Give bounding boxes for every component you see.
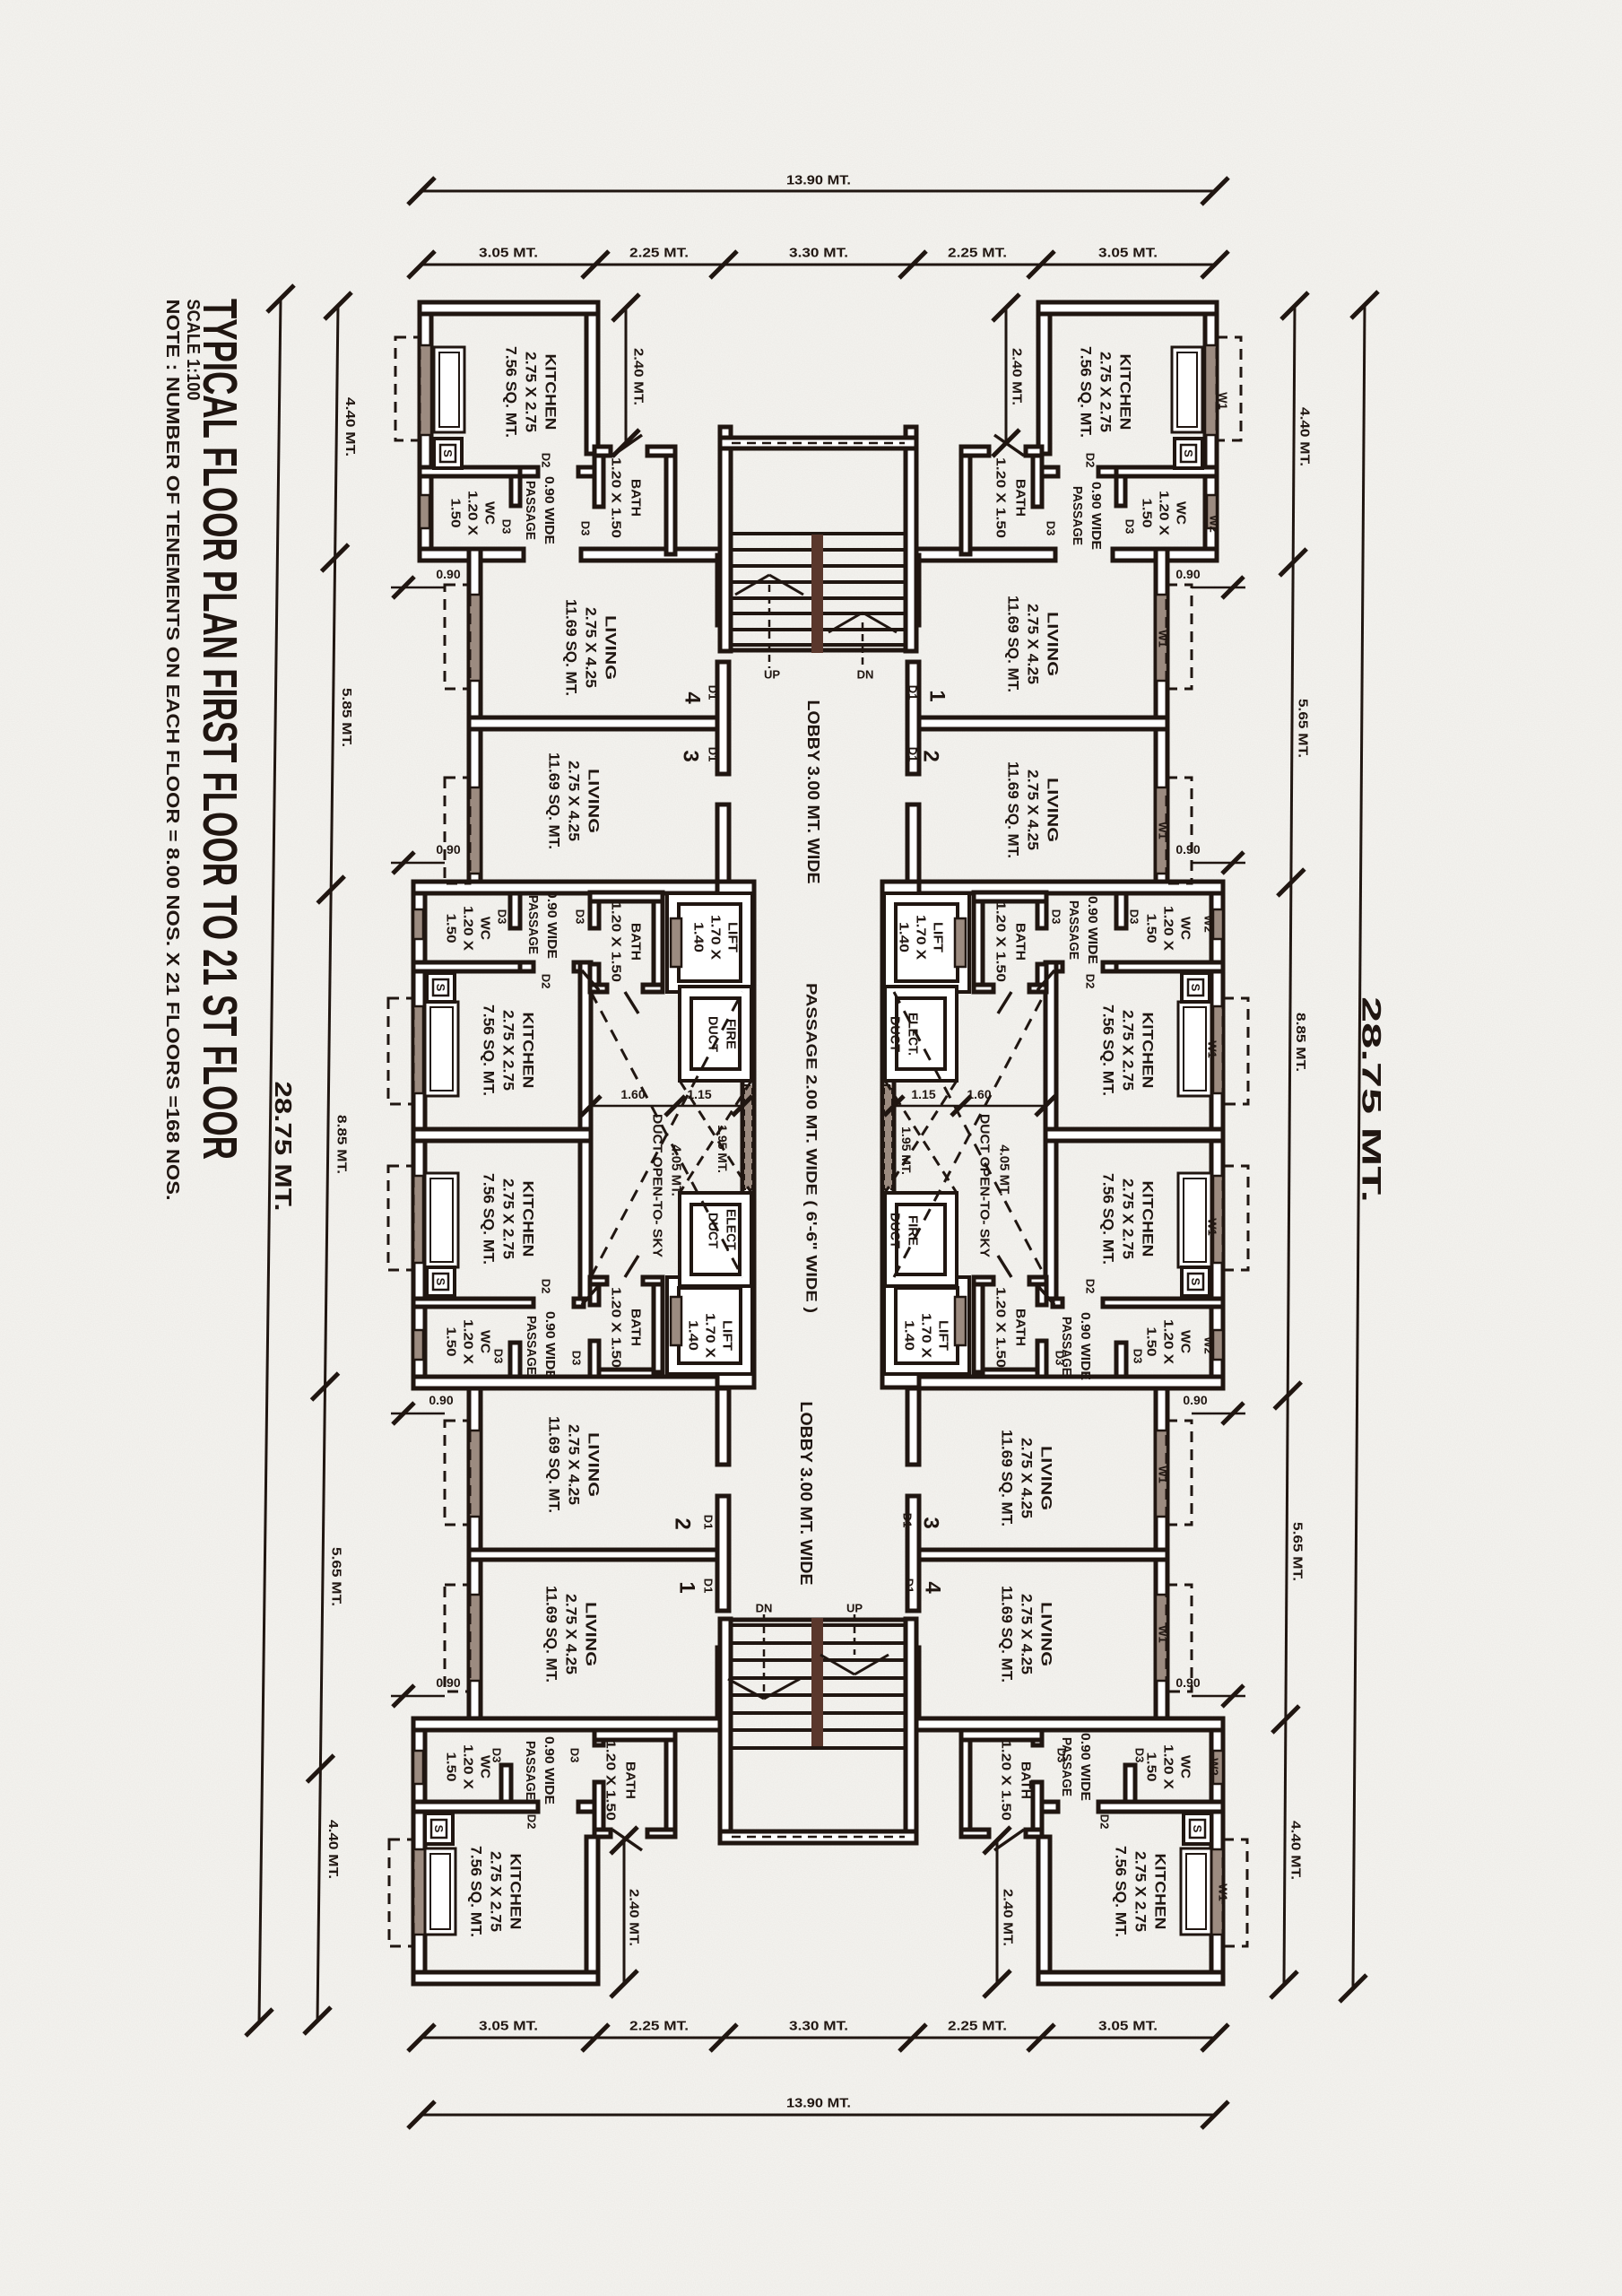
svg-text:W2: W2 (1202, 1336, 1216, 1354)
svg-text:1.95 MT.: 1.95 MT. (716, 1125, 730, 1173)
svg-text:PASSAGE: PASSAGE (523, 481, 538, 540)
svg-text:1: 1 (675, 1581, 699, 1593)
svg-text:2: 2 (919, 750, 943, 761)
svg-text:1.20 X: 1.20 X (1161, 906, 1176, 951)
svg-text:2.40 MT.: 2.40 MT. (631, 348, 646, 405)
svg-text:1.20 X: 1.20 X (461, 1319, 476, 1364)
svg-text:WC: WC (1178, 1755, 1193, 1779)
svg-text:D2: D2 (525, 1814, 539, 1830)
svg-text:D2: D2 (540, 453, 553, 468)
svg-text:3.05 MT.: 3.05 MT. (1098, 2019, 1158, 2034)
svg-text:PASSAGE: PASSAGE (525, 895, 541, 954)
svg-text:1.40: 1.40 (897, 922, 912, 952)
svg-text:KITCHEN: KITCHEN (520, 1013, 537, 1089)
svg-text:PASSAGE: PASSAGE (524, 1316, 539, 1375)
svg-text:LIVING: LIVING (585, 769, 603, 833)
svg-text:1.50: 1.50 (444, 1752, 459, 1782)
svg-text:WC: WC (1178, 1330, 1193, 1353)
svg-text:KITCHEN: KITCHEN (507, 1854, 525, 1930)
svg-text:1.60: 1.60 (967, 1087, 991, 1101)
svg-text:11.69 SQ. MT.: 11.69 SQ. MT. (563, 599, 580, 696)
svg-text:1.40: 1.40 (686, 1320, 701, 1351)
svg-text:D2: D2 (1084, 453, 1097, 468)
svg-text:1.20 X 1.50: 1.20 X 1.50 (603, 1740, 619, 1821)
svg-text:8.85 MT.: 8.85 MT. (334, 1115, 349, 1174)
svg-text:0.90: 0.90 (1175, 1675, 1200, 1690)
svg-text:S: S (1182, 449, 1195, 457)
svg-text:2.75 X 2.75: 2.75 X 2.75 (1120, 1178, 1137, 1259)
svg-text:7.56 SQ. MT.: 7.56 SQ. MT. (1100, 1173, 1117, 1265)
svg-text:2.40 MT.: 2.40 MT. (627, 1889, 642, 1946)
svg-text:7.56 SQ. MT.: 7.56 SQ. MT. (503, 346, 520, 438)
svg-text:D3: D3 (574, 909, 587, 925)
svg-text:S: S (1189, 1278, 1202, 1286)
svg-text:1.50: 1.50 (1144, 914, 1159, 944)
svg-text:D3: D3 (1128, 909, 1141, 925)
svg-text:0.90: 0.90 (436, 567, 460, 581)
svg-text:2.75 X 4.25: 2.75 X 4.25 (1019, 1438, 1036, 1518)
svg-text:4: 4 (921, 1581, 945, 1594)
svg-text:PASSAGE: PASSAGE (1059, 1317, 1074, 1376)
svg-text:1.20 X: 1.20 X (1161, 1319, 1176, 1364)
svg-text:7.56 SQ. MT.: 7.56 SQ. MT. (468, 1846, 485, 1937)
svg-text:4.40 MT.: 4.40 MT. (325, 1820, 341, 1879)
svg-text:LIFT: LIFT (936, 1320, 951, 1351)
svg-text:2.25 MT.: 2.25 MT. (948, 246, 1007, 261)
svg-text:3.05 MT.: 3.05 MT. (479, 2019, 538, 2034)
svg-text:2.75 X 2.75: 2.75 X 2.75 (488, 1851, 505, 1932)
svg-text:0.90: 0.90 (436, 842, 460, 857)
svg-text:5.65 MT.: 5.65 MT. (328, 1547, 343, 1606)
svg-text:D3: D3 (500, 519, 514, 535)
svg-text:KITCHEN: KITCHEN (520, 1181, 537, 1257)
svg-text:2.25 MT.: 2.25 MT. (629, 2019, 689, 2034)
svg-text:1.50: 1.50 (1144, 1327, 1159, 1357)
svg-text:2.75 X 4.25: 2.75 X 4.25 (566, 761, 583, 841)
svg-text:PASSAGE: PASSAGE (1070, 486, 1085, 545)
svg-text:LIVING: LIVING (1045, 778, 1062, 842)
svg-text:13.90 MT.: 13.90 MT. (786, 2096, 851, 2111)
svg-text:BATH: BATH (1013, 923, 1028, 961)
svg-text:1.20 X: 1.20 X (461, 1744, 476, 1789)
svg-text:0.90: 0.90 (436, 1675, 460, 1690)
svg-text:BATH: BATH (629, 923, 644, 961)
svg-text:2.40 MT.: 2.40 MT. (1001, 1889, 1016, 1946)
svg-text:BATH: BATH (1013, 1309, 1028, 1346)
svg-text:7.56 SQ. MT.: 7.56 SQ. MT. (1100, 1004, 1117, 1096)
svg-text:D3: D3 (1123, 519, 1137, 535)
svg-text:11.69 SQ. MT.: 11.69 SQ. MT. (999, 1586, 1016, 1683)
svg-text:4.40 MT.: 4.40 MT. (1297, 407, 1313, 466)
svg-text:W1: W1 (1206, 1218, 1219, 1236)
svg-text:0.90 WIDE: 0.90 WIDE (544, 891, 559, 959)
svg-text:D3: D3 (579, 521, 593, 536)
svg-text:1.50: 1.50 (448, 499, 464, 528)
svg-text:11.69 SQ. MT.: 11.69 SQ. MT. (543, 1586, 560, 1683)
svg-text:1.70 X: 1.70 X (703, 1313, 718, 1358)
svg-text:1.20 X: 1.20 X (1161, 1744, 1176, 1789)
svg-text:13.90 MT.: 13.90 MT. (786, 173, 851, 188)
svg-text:KITCHEN: KITCHEN (1152, 1854, 1169, 1930)
svg-text:1.60: 1.60 (620, 1087, 645, 1101)
svg-text:W1: W1 (1217, 392, 1230, 410)
svg-text:11.69 SQ. MT.: 11.69 SQ. MT. (546, 752, 563, 849)
svg-text:FIRE: FIRE (906, 1215, 921, 1246)
svg-text:ELECT.: ELECT. (724, 1209, 739, 1252)
svg-text:1.70 X: 1.70 X (914, 915, 929, 960)
svg-text:LIVING: LIVING (1045, 612, 1062, 676)
svg-text:DUCT: DUCT (888, 1213, 903, 1248)
svg-text:WC: WC (1174, 501, 1189, 525)
svg-text:WC: WC (1178, 917, 1193, 940)
svg-text:LIFT: LIFT (725, 922, 741, 952)
svg-text:0.90: 0.90 (429, 1393, 453, 1407)
svg-text:1.20 X: 1.20 X (1157, 491, 1172, 535)
svg-text:1.70 X: 1.70 X (708, 915, 724, 960)
svg-text:2.25 MT.: 2.25 MT. (948, 2019, 1007, 2034)
svg-text:2: 2 (671, 1518, 695, 1529)
svg-text:4.05 MT.: 4.05 MT. (669, 1144, 684, 1196)
svg-text:LIFT: LIFT (720, 1320, 735, 1351)
svg-text:2.75 X 4.25: 2.75 X 4.25 (1025, 770, 1042, 850)
svg-text:2.75 X 4.25: 2.75 X 4.25 (566, 1424, 583, 1505)
svg-text:D1: D1 (901, 1513, 915, 1528)
svg-text:WC: WC (482, 501, 498, 525)
svg-text:UP: UP (846, 1602, 863, 1615)
svg-text:WC: WC (478, 1330, 493, 1353)
svg-text:7.56 SQ. MT.: 7.56 SQ. MT. (481, 1173, 498, 1265)
svg-text:3.05 MT.: 3.05 MT. (1098, 246, 1158, 261)
svg-text:0.90: 0.90 (1175, 842, 1200, 857)
svg-text:1: 1 (925, 690, 950, 701)
svg-text:1.20 X 1.50: 1.20 X 1.50 (609, 1287, 624, 1368)
svg-text:2.75 X 2.75: 2.75 X 2.75 (500, 1178, 517, 1259)
svg-text:1.50: 1.50 (1140, 499, 1155, 528)
svg-text:W2: W2 (1208, 1758, 1221, 1776)
svg-text:FIRE: FIRE (724, 1019, 739, 1049)
svg-text:KITCHEN: KITCHEN (1140, 1181, 1157, 1257)
svg-text:1.20 X 1.50: 1.20 X 1.50 (993, 901, 1009, 982)
svg-text:D3: D3 (568, 1748, 582, 1763)
svg-text:DN: DN (756, 1602, 773, 1615)
svg-text:PASSAGE: PASSAGE (523, 1741, 538, 1800)
svg-text:D3: D3 (1045, 521, 1058, 536)
svg-text:0.90 WIDE: 0.90 WIDE (1078, 1312, 1093, 1380)
svg-text:KITCHEN: KITCHEN (1140, 1013, 1157, 1089)
svg-text:8.85 MT.: 8.85 MT. (1293, 1013, 1308, 1072)
svg-text:2.75 X 4.25: 2.75 X 4.25 (563, 1594, 580, 1674)
svg-text:LIVING: LIVING (585, 1432, 603, 1497)
svg-text:3.05 MT.: 3.05 MT. (479, 246, 538, 261)
svg-text:0.90 WIDE: 0.90 WIDE (1078, 1733, 1093, 1801)
svg-text:0.90: 0.90 (1183, 1393, 1207, 1407)
svg-text:LIVING: LIVING (583, 1602, 600, 1666)
svg-text:D3: D3 (1055, 1748, 1069, 1763)
svg-text:2.40 MT.: 2.40 MT. (1010, 348, 1025, 405)
svg-text:S: S (1189, 984, 1202, 992)
svg-text:D3: D3 (492, 1349, 506, 1364)
svg-text:W2: W2 (1202, 915, 1216, 933)
svg-text:D1: D1 (906, 685, 920, 700)
svg-text:0.90 WIDE: 0.90 WIDE (1085, 896, 1100, 964)
svg-text:2.75 X 2.75: 2.75 X 2.75 (1132, 1851, 1149, 1932)
svg-text:BATH: BATH (623, 1761, 638, 1799)
svg-text:S: S (434, 1278, 447, 1286)
svg-text:D3: D3 (1050, 909, 1063, 925)
svg-text:4.40 MT.: 4.40 MT. (343, 397, 358, 457)
svg-text:NOTE : NUMBER OF TENEMENTS ON: NOTE : NUMBER OF TENEMENTS ON EACH FLOOR… (162, 300, 182, 1201)
svg-text:28.75 MT.: 28.75 MT. (270, 1082, 297, 1212)
svg-text:DUCT OPEN-TO- SKY: DUCT OPEN-TO- SKY (977, 1114, 993, 1257)
svg-text:1.20 X 1.50: 1.20 X 1.50 (993, 1287, 1009, 1368)
svg-text:7.56 SQ. MT.: 7.56 SQ. MT. (481, 1004, 498, 1096)
svg-text:BATH: BATH (629, 1309, 644, 1346)
svg-text:0.90 WIDE: 0.90 WIDE (542, 476, 557, 544)
svg-text:DUCT: DUCT (888, 1016, 903, 1052)
svg-text:2.75 X 2.75: 2.75 X 2.75 (1120, 1010, 1137, 1091)
svg-text:DUCT: DUCT (706, 1016, 721, 1052)
svg-text:D1: D1 (903, 1578, 916, 1594)
svg-text:WC: WC (478, 917, 493, 940)
svg-text:D2: D2 (540, 974, 553, 989)
svg-text:1.15: 1.15 (687, 1087, 711, 1101)
svg-text:0.90 WIDE: 0.90 WIDE (542, 1736, 557, 1805)
svg-text:2.75 X 4.25: 2.75 X 4.25 (1019, 1594, 1036, 1674)
svg-text:KITCHEN: KITCHEN (1117, 354, 1134, 430)
svg-text:4: 4 (681, 691, 705, 704)
svg-text:0.90 WIDE: 0.90 WIDE (1089, 482, 1104, 550)
svg-text:PASSAGE: PASSAGE (1066, 900, 1081, 960)
svg-text:TYPICAL FLOOR PLAN FIRST FLOOR: TYPICAL FLOOR PLAN FIRST FLOOR TO 21 ST … (193, 299, 247, 1160)
svg-text:2.75 X 2.75: 2.75 X 2.75 (500, 1010, 517, 1091)
svg-text:1.50: 1.50 (444, 1327, 459, 1357)
svg-text:W1: W1 (1157, 1625, 1170, 1643)
svg-text:3: 3 (919, 1517, 943, 1528)
svg-text:LIVING: LIVING (1038, 1602, 1055, 1666)
svg-text:1.20 X 1.50: 1.20 X 1.50 (993, 457, 1009, 538)
svg-text:S: S (441, 449, 455, 457)
svg-text:1.20 X: 1.20 X (465, 491, 481, 535)
svg-text:W1: W1 (1157, 1465, 1170, 1483)
svg-text:D1: D1 (906, 747, 920, 762)
svg-text:11.69 SQ. MT.: 11.69 SQ. MT. (1005, 596, 1022, 692)
svg-text:LOBBY 3.00 MT. WIDE: LOBBY 3.00 MT. WIDE (804, 700, 822, 884)
svg-text:1.40: 1.40 (691, 922, 707, 952)
svg-text:SCALE 1:100: SCALE 1:100 (183, 300, 203, 401)
svg-text:LOBBY 3.00 MT. WIDE: LOBBY 3.00 MT. WIDE (797, 1402, 815, 1586)
svg-text:D1: D1 (707, 747, 720, 762)
svg-text:2.75 X 4.25: 2.75 X 4.25 (1025, 604, 1042, 684)
svg-text:5.65 MT.: 5.65 MT. (1290, 1522, 1305, 1581)
svg-text:11.69 SQ. MT.: 11.69 SQ. MT. (546, 1416, 563, 1513)
svg-text:1.20 X: 1.20 X (461, 906, 476, 951)
svg-text:3.30 MT.: 3.30 MT. (789, 2019, 848, 2034)
svg-text:KITCHEN: KITCHEN (542, 354, 559, 430)
svg-text:D3: D3 (1132, 1349, 1145, 1364)
svg-text:0.90: 0.90 (1175, 567, 1200, 581)
svg-text:BATH: BATH (629, 479, 644, 517)
svg-text:UP: UP (764, 668, 780, 682)
svg-text:D2: D2 (540, 1279, 553, 1294)
svg-text:2.75 X 2.75: 2.75 X 2.75 (1097, 352, 1115, 432)
svg-text:D1: D1 (702, 1578, 716, 1594)
svg-text:W1: W1 (1157, 630, 1170, 648)
svg-text:D3: D3 (496, 909, 509, 925)
svg-text:1.20 X 1.50: 1.20 X 1.50 (999, 1740, 1014, 1821)
svg-text:W1: W1 (1157, 822, 1170, 839)
svg-text:1.70 X: 1.70 X (919, 1313, 934, 1358)
svg-text:LIVING: LIVING (603, 615, 620, 680)
svg-text:S: S (432, 1825, 446, 1833)
svg-text:1.95 MT.: 1.95 MT. (899, 1126, 914, 1175)
svg-text:DUCT: DUCT (706, 1213, 721, 1248)
svg-text:D2: D2 (1084, 974, 1097, 989)
svg-text:D3: D3 (490, 1748, 504, 1763)
svg-text:1.15: 1.15 (911, 1087, 935, 1101)
svg-text:1.50: 1.50 (444, 914, 459, 944)
svg-text:S: S (434, 984, 447, 992)
svg-text:D3: D3 (1054, 1351, 1067, 1366)
svg-text:W2: W2 (1208, 515, 1221, 533)
svg-text:DUCT OPEN-TO- SKY: DUCT OPEN-TO- SKY (650, 1114, 665, 1257)
svg-text:S: S (1191, 1825, 1204, 1833)
svg-text:0.90 WIDE: 0.90 WIDE (542, 1311, 558, 1379)
svg-text:1.20 X 1.50: 1.20 X 1.50 (609, 901, 624, 982)
svg-text:D3: D3 (1133, 1748, 1147, 1763)
svg-text:2.75 X 4.25: 2.75 X 4.25 (583, 607, 600, 688)
svg-text:PASSAGE 2.00 MT. WIDE ( 6'-6": PASSAGE 2.00 MT. WIDE ( 6'-6" WIDE ) (803, 983, 820, 1313)
svg-text:2.25 MT.: 2.25 MT. (629, 246, 689, 261)
svg-text:ELECT.: ELECT. (906, 1013, 921, 1056)
svg-text:D3: D3 (570, 1351, 584, 1366)
svg-text:D2: D2 (1084, 1279, 1097, 1294)
svg-text:DN: DN (857, 668, 874, 682)
svg-text:D1: D1 (702, 1515, 716, 1530)
svg-text:7.56 SQ. MT.: 7.56 SQ. MT. (1113, 1846, 1130, 1937)
svg-text:3.30 MT.: 3.30 MT. (789, 246, 848, 261)
svg-text:5.85 MT.: 5.85 MT. (339, 688, 354, 747)
svg-text:11.69 SQ. MT.: 11.69 SQ. MT. (1005, 761, 1022, 858)
svg-text:4.05 MT.: 4.05 MT. (997, 1144, 1012, 1196)
svg-text:5.65 MT.: 5.65 MT. (1295, 699, 1310, 758)
svg-text:7.56 SQ. MT.: 7.56 SQ. MT. (1078, 346, 1095, 438)
svg-text:D2: D2 (1098, 1814, 1112, 1830)
svg-text:LIFT: LIFT (931, 922, 946, 952)
svg-text:2.75 X 2.75: 2.75 X 2.75 (523, 352, 540, 432)
svg-text:D1: D1 (707, 685, 720, 700)
svg-text:1.20 X 1.50: 1.20 X 1.50 (609, 457, 624, 538)
svg-text:BATH: BATH (1019, 1761, 1034, 1799)
svg-text:W1: W1 (1206, 1040, 1219, 1058)
svg-text:4.40 MT.: 4.40 MT. (1288, 1821, 1303, 1880)
svg-text:11.69 SQ. MT.: 11.69 SQ. MT. (999, 1430, 1016, 1526)
svg-text:PASSAGE: PASSAGE (1059, 1737, 1074, 1796)
svg-text:BATH: BATH (1013, 479, 1028, 517)
svg-text:W1: W1 (1217, 1883, 1230, 1901)
svg-text:28.75 MT.: 28.75 MT. (1357, 996, 1386, 1203)
svg-text:1.40: 1.40 (902, 1320, 917, 1351)
svg-text:LIVING: LIVING (1038, 1446, 1055, 1510)
svg-text:3: 3 (679, 750, 703, 761)
